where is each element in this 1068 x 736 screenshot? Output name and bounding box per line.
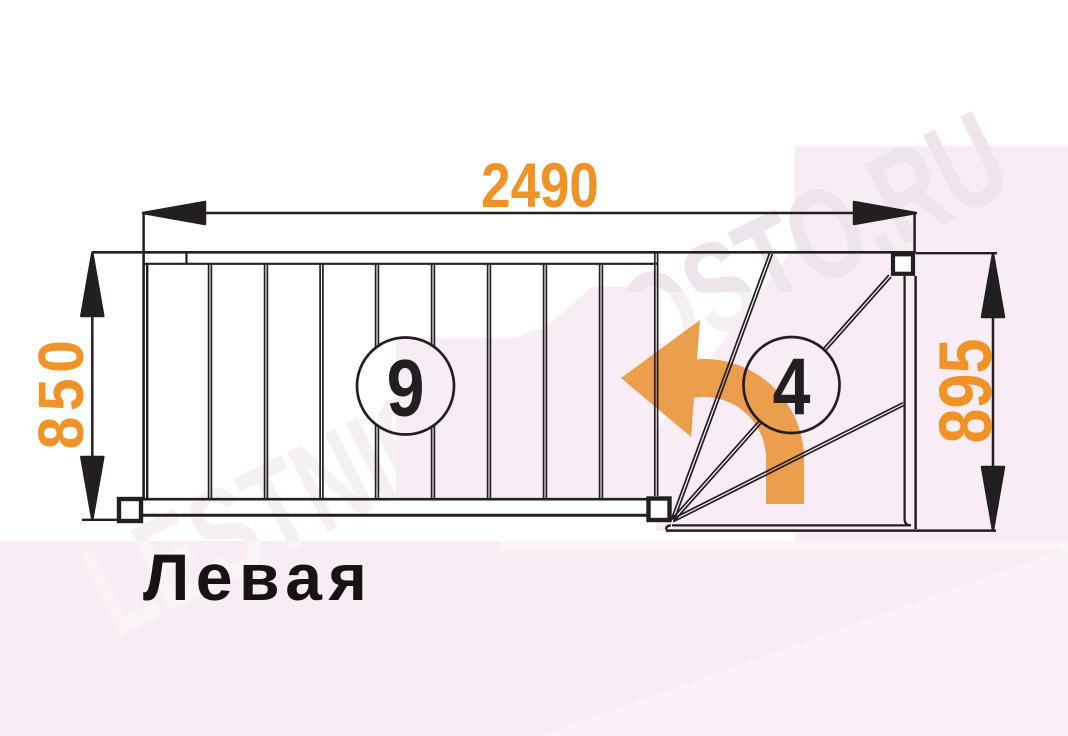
svg-text:2490: 2490 xyxy=(481,151,599,221)
svg-text:895: 895 xyxy=(924,339,1007,444)
svg-text:4: 4 xyxy=(773,341,811,432)
svg-text:9: 9 xyxy=(387,342,425,433)
svg-text:850: 850 xyxy=(26,335,98,450)
svg-text:Левая: Левая xyxy=(143,540,373,614)
